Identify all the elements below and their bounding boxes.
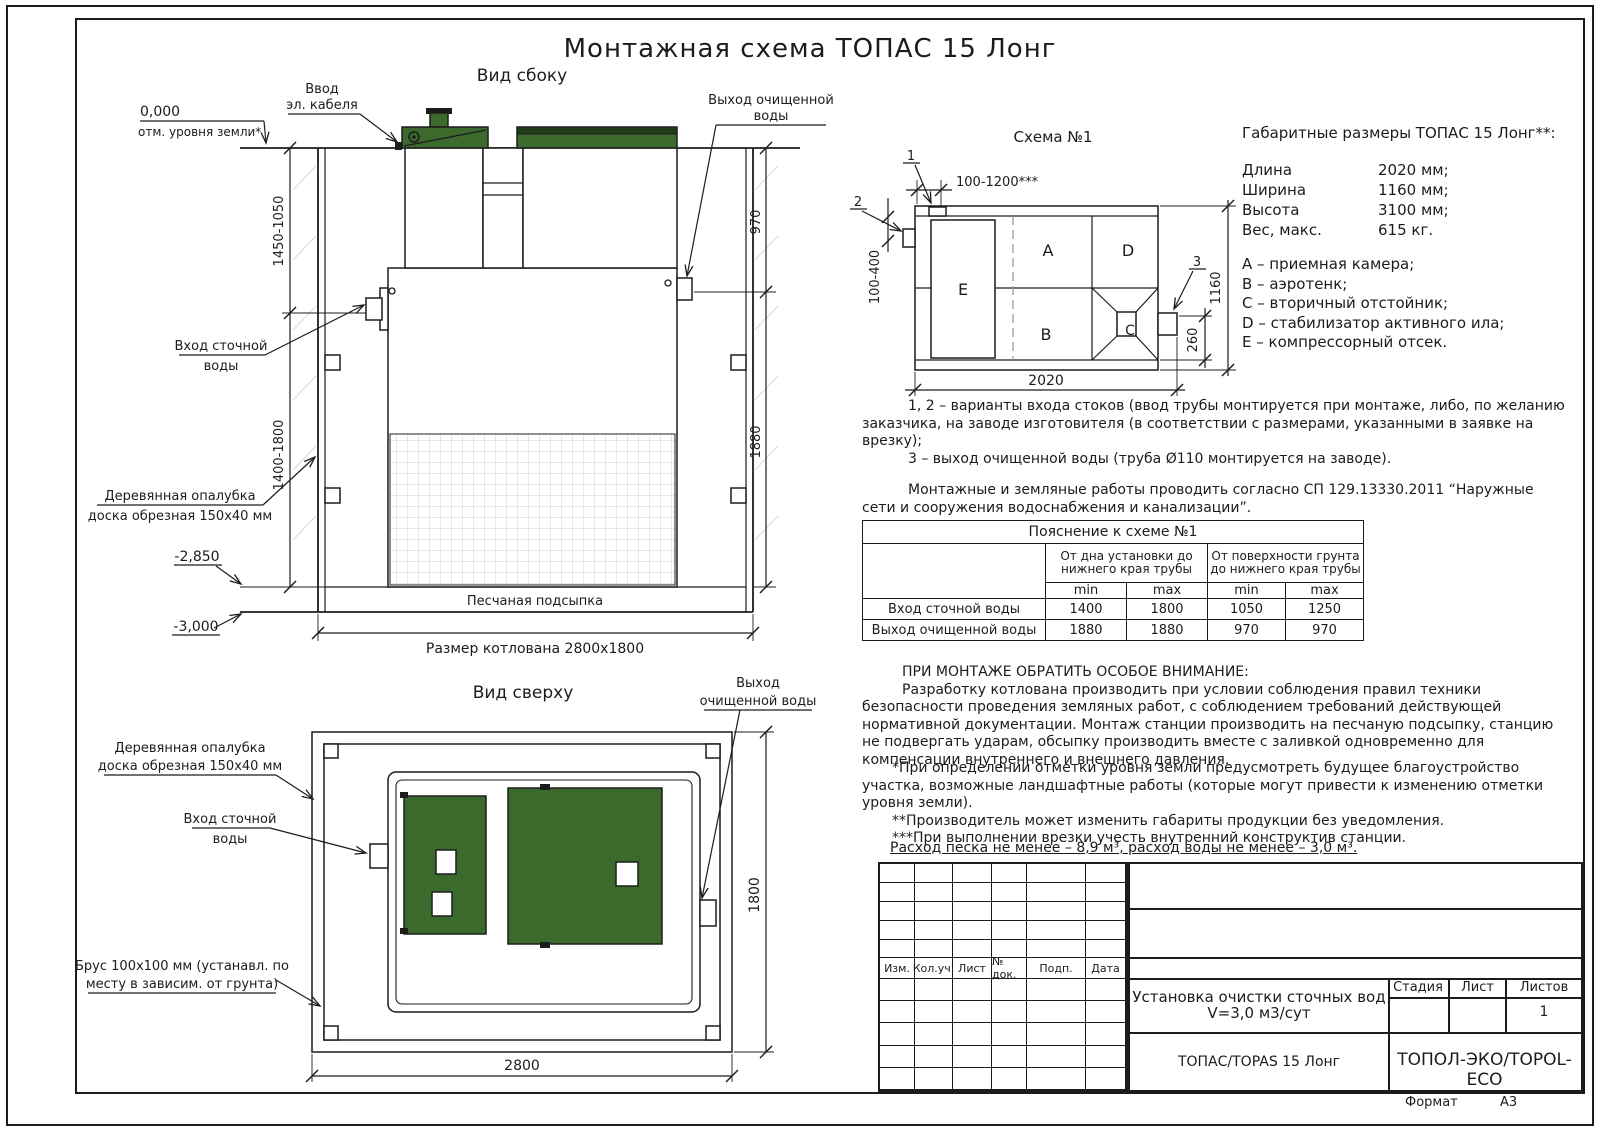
grid-cell (1027, 1068, 1086, 1090)
rev-header-izm: Изм. (880, 958, 915, 979)
table-group-1: От дна установки до нижнего края трубы (1046, 544, 1208, 583)
dim-schema-length: 2020 (1028, 373, 1064, 389)
document-title-cell: Установка очистки сточных вод V=3,0 м3/с… (1130, 978, 1388, 1032)
note-sp-standard: Монтажные и земляные работы проводить со… (862, 482, 1568, 517)
tb-line (1130, 908, 1581, 910)
grid-cell (992, 864, 1027, 883)
cable-entry-point (395, 142, 402, 150)
doc-title: Установка очистки сточных вод (1132, 989, 1385, 1005)
schema-title: Схема №1 (1014, 128, 1093, 146)
formwork-top-label-2: доска обрезная 150х40 мм (98, 759, 282, 774)
legend-item: B – аэротенк; (1242, 275, 1572, 295)
cell-value: 1250 (1286, 599, 1364, 620)
grid-cell (880, 1068, 915, 1090)
level-sand-label: -2,850 (174, 549, 219, 565)
cell-value: 970 (1208, 620, 1286, 641)
grid-cell (953, 1001, 992, 1023)
schema-dim-top: 100-1200*** (906, 175, 1039, 206)
title-block: Установка очистки сточных вод V=3,0 м3/с… (1128, 862, 1583, 1092)
callout-1-label: 1 (907, 149, 915, 164)
side-view-title: Вид сбоку (477, 66, 567, 86)
grid-cell (992, 1023, 1027, 1045)
grid-cell (1086, 1023, 1126, 1045)
grid-cell (915, 1068, 953, 1090)
installation-warning: ПРИ МОНТАЖЕ ОБРАТИТЬ ОСОБОЕ ВНИМАНИЕ: Ра… (862, 664, 1570, 769)
formwork-label-1: Деревянная опалубка (104, 489, 255, 504)
inlet-top-label-2: воды (213, 832, 248, 847)
spec-label: Длина (1242, 160, 1378, 180)
grid-cell (1086, 1068, 1126, 1090)
cable-label-1: Ввод (305, 82, 339, 97)
grid-cell (992, 1046, 1027, 1068)
dim-inlet-depth: 100-400 (868, 250, 883, 304)
cell-value: 1800 (1127, 599, 1208, 620)
compartment-c: C (1125, 323, 1135, 339)
ground-label: отм. уровня земли* (138, 125, 261, 139)
footnote-2: **Производитель может изменить габариты … (862, 813, 1570, 831)
tank-insulation-grid (390, 434, 675, 585)
col-min: min (1208, 583, 1286, 599)
side-view: Вид сбоку (88, 66, 834, 657)
inlet-label-1: Вход сточной (175, 339, 268, 354)
grid-cell (953, 864, 992, 883)
sand-bed-label: Песчаная подсыпка (467, 594, 603, 609)
grid-cell (915, 902, 953, 921)
warning-body: Разработку котлована производить при усл… (862, 682, 1570, 770)
schema-dim-left: 100-400 (868, 198, 894, 304)
outlet-top-label-2: очищенной воды (700, 694, 817, 709)
beam-label-2: месту в зависим. от грунта) (86, 977, 278, 992)
tb-line (1130, 957, 1581, 959)
grid-cell (880, 864, 915, 883)
drawing-sheet: Монтажная схема ТОПАС 15 Лонг Вид сбоку (0, 0, 1600, 1131)
pit-size-label: Размер котлована 2800х1800 (426, 641, 644, 657)
grid-cell (992, 921, 1027, 940)
footnotes: *При определении отметки уровня земли пр… (862, 760, 1570, 848)
spec-label: Высота (1242, 200, 1378, 220)
top-view-title: Вид сверху (473, 683, 574, 703)
right-lid-top (508, 784, 662, 948)
grid-cell (880, 902, 915, 921)
grid-cell (880, 1001, 915, 1023)
rev-header-ndok: № док. (992, 958, 1027, 979)
grid-cell (992, 1001, 1027, 1023)
outlet-fitting-top (700, 900, 716, 926)
dim-outlet-height: 260 (1186, 328, 1201, 353)
grid-cell (953, 1068, 992, 1090)
rev-header-podp: Подп. (1027, 958, 1086, 979)
grid-cell (880, 979, 915, 1001)
spec-value: 2020 мм; (1378, 160, 1449, 180)
footnote-1: *При определении отметки уровня земли пр… (862, 760, 1570, 813)
sheets-label: Листов (1507, 980, 1581, 995)
spec-label: Вес, макс. (1242, 220, 1378, 240)
right-lid (517, 127, 677, 148)
row-name: Выход очищенной воды (863, 620, 1046, 641)
dim-left-lower: 1400-1800 (272, 420, 287, 491)
spec-value: 615 кг. (1378, 220, 1433, 240)
grid-cell (953, 1023, 992, 1045)
grid-cell (953, 979, 992, 1001)
grid-cell (992, 1068, 1027, 1090)
note-outlet: 3 – выход очищенной воды (труба Ø110 мон… (862, 451, 1568, 469)
inlet-fitting-top (370, 844, 388, 868)
sheets-value: 1 (1507, 1004, 1581, 1020)
grid-cell (880, 1023, 915, 1045)
spec-value: 3100 мм; (1378, 200, 1449, 220)
left-lid-top (400, 792, 486, 934)
grid-cell (915, 979, 953, 1001)
grid-cell (915, 883, 953, 902)
grid-cell (953, 902, 992, 921)
table-group-2: От поверхности грунта до нижнего края тр… (1208, 544, 1364, 583)
row-name: Вход сточной воды (863, 599, 1046, 620)
cell-value: 1880 (1046, 620, 1127, 641)
outlet-label-1: Выход очищенной (708, 93, 834, 108)
callout-2-label: 2 (854, 195, 862, 210)
formwork-label-2: доска обрезная 150х40 мм (88, 509, 272, 524)
dim-top-height: 1800 (747, 877, 763, 913)
product-name: ТОПАС/TOPAS 15 Лонг (1130, 1054, 1388, 1070)
spec-row: Ширина1160 мм; (1242, 180, 1572, 200)
grid-cell (953, 883, 992, 902)
sheet-label: Лист (1450, 980, 1505, 995)
schema-1: Схема №1 E A B D C 1 (850, 128, 1236, 396)
schema-notes: 1, 2 – варианты входа стоков (ввод трубы… (862, 398, 1568, 517)
dim-left-upper: 1450-1050 (272, 196, 287, 267)
overall-dimensions-block: Габаритные размеры ТОПАС 15 Лонг**: Длин… (1242, 124, 1572, 353)
note-inlet-variants: 1, 2 – варианты входа стоков (ввод трубы… (862, 398, 1568, 451)
spec-value: 1160 мм; (1378, 180, 1449, 200)
grid-cell (953, 1046, 992, 1068)
outlet-label-2: воды (754, 109, 789, 124)
grid-cell (1086, 979, 1126, 1001)
formwork-top-label-1: Деревянная опалубка (114, 741, 265, 756)
tb-line (1388, 997, 1581, 999)
grid-cell (1027, 864, 1086, 883)
table-row: Вход сточной воды 1400 1800 1050 1250 (863, 599, 1364, 620)
grid-cell (992, 902, 1027, 921)
legend-item: C – вторичный отстойник; (1242, 294, 1572, 314)
grid-cell (915, 921, 953, 940)
beam-note: Брус 100х100 мм (устанавл. по месту в за… (75, 959, 320, 1006)
spec-label: Ширина (1242, 180, 1378, 200)
grid-cell (1027, 940, 1086, 958)
doc-volume: V=3,0 м3/сут (1207, 1005, 1310, 1021)
legend-item: A – приемная камера; (1242, 255, 1572, 275)
grid-cell (1027, 902, 1086, 921)
grid-cell (1086, 883, 1126, 902)
rev-header-koluch: Кол.уч. (915, 958, 953, 979)
cable-label-2: эл. кабеля (286, 98, 358, 113)
outlet-top-label-1: Выход (736, 676, 780, 691)
explanation-table: Пояснение к схеме №1 От дна установки до… (862, 520, 1364, 641)
table-row: Выход очищенной воды 1880 1880 970 970 (863, 620, 1364, 641)
compartment-d: D (1122, 241, 1134, 260)
grid-cell (992, 979, 1027, 1001)
inlet-top-label-1: Вход сточной (184, 812, 277, 827)
cable-entry-note: Ввод эл. кабеля (286, 82, 397, 142)
tank-neck (405, 148, 677, 268)
spec-row: Высота3100 мм; (1242, 200, 1572, 220)
pit-dimension: Размер котлована 2800х1800 (312, 614, 759, 657)
cell-value: 1050 (1208, 599, 1286, 620)
table-caption: Пояснение к схеме №1 (863, 521, 1364, 544)
cell-value: 1880 (1127, 620, 1208, 641)
consumption-note: Расход песка не менее – 8,9 м³, расход в… (890, 840, 1357, 856)
dim-top-width: 2800 (504, 1058, 540, 1074)
compartment-b: B (1041, 325, 1052, 344)
specs-heading: Габаритные размеры ТОПАС 15 Лонг**: (1242, 124, 1572, 142)
schema-callout-3: 3 (1158, 255, 1206, 335)
format-label: Формат (1405, 1095, 1458, 1110)
grid-cell (880, 883, 915, 902)
left-dimensions: 1450-1050 1400-1800 (272, 142, 366, 593)
level-bottom-label: -3,000 (173, 619, 218, 635)
grid-cell (915, 864, 953, 883)
ground-level-note: 0,000 отм. уровня земли* (138, 104, 266, 143)
tb-line (1130, 1032, 1581, 1034)
compartment-a: A (1043, 241, 1054, 260)
col-min: min (1046, 583, 1127, 599)
grid-cell (1027, 883, 1086, 902)
legend-item: D – стабилизатор активного ила; (1242, 314, 1572, 334)
compartment-legend: A – приемная камера; B – аэротенк; C – в… (1242, 255, 1572, 353)
revision-table: Изм. Кол.уч. Лист № док. Подп. Дата (878, 862, 1128, 1092)
cell-value: 970 (1286, 620, 1364, 641)
grid-cell (1086, 902, 1126, 921)
grid-cell (953, 921, 992, 940)
schema-callout-2: 2 (850, 195, 915, 247)
grid-cell (915, 940, 953, 958)
beam-label-1: Брус 100х100 мм (устанавл. по (75, 959, 289, 974)
level-marks: -2,850 -3,000 (172, 549, 241, 635)
grid-cell (1027, 1001, 1086, 1023)
grid-cell (880, 921, 915, 940)
grid-cell (1086, 940, 1126, 958)
dim-right-upper: 970 (749, 210, 764, 235)
left-lid (402, 108, 488, 148)
dim-cable-range: 100-1200*** (956, 175, 1039, 190)
table-empty-head (863, 544, 1046, 599)
warning-heading: ПРИ МОНТАЖЕ ОБРАТИТЬ ОСОБОЕ ВНИМАНИЕ: (862, 664, 1570, 682)
grid-cell (1086, 921, 1126, 940)
grid-cell (1086, 864, 1126, 883)
formwork-note-top: Деревянная опалубка доска обрезная 150х4… (98, 741, 313, 799)
grid-cell (1086, 1001, 1126, 1023)
stage-label: Стадия (1388, 980, 1448, 995)
grid-cell (1027, 979, 1086, 1001)
ground-mark: 0,000 (140, 104, 180, 120)
callout-3-label: 3 (1193, 255, 1201, 270)
rev-header-data: Дата (1086, 958, 1126, 979)
legend-item: E – компрессорный отсек. (1242, 333, 1572, 353)
compartment-e: E (958, 280, 968, 299)
grid-cell (1027, 1046, 1086, 1068)
dim-right-lower: 1880 (749, 425, 764, 458)
grid-cell (915, 1023, 953, 1045)
grid-cell (915, 1046, 953, 1068)
spec-row: Вес, макс.615 кг. (1242, 220, 1572, 240)
company-name: ТОПОЛ-ЭКО/TOPOL-ECO (1388, 1050, 1581, 1090)
grid-cell (992, 883, 1027, 902)
col-max: max (1286, 583, 1364, 599)
spec-row: Длина2020 мм; (1242, 160, 1572, 180)
grid-cell (1086, 1046, 1126, 1068)
col-max: max (1127, 583, 1208, 599)
dim-schema-width: 1160 (1209, 271, 1224, 304)
top-view: Вид сверху (75, 676, 816, 1082)
grid-cell (915, 1001, 953, 1023)
rev-header-list: Лист (953, 958, 992, 979)
grid-cell (880, 940, 915, 958)
format-value: А3 (1500, 1095, 1517, 1110)
cell-value: 1400 (1046, 599, 1127, 620)
inlet-label-2: воды (204, 359, 239, 374)
grid-cell (953, 940, 992, 958)
grid-cell (880, 1046, 915, 1068)
grid-cell (1027, 921, 1086, 940)
grid-cell (1027, 1023, 1086, 1045)
